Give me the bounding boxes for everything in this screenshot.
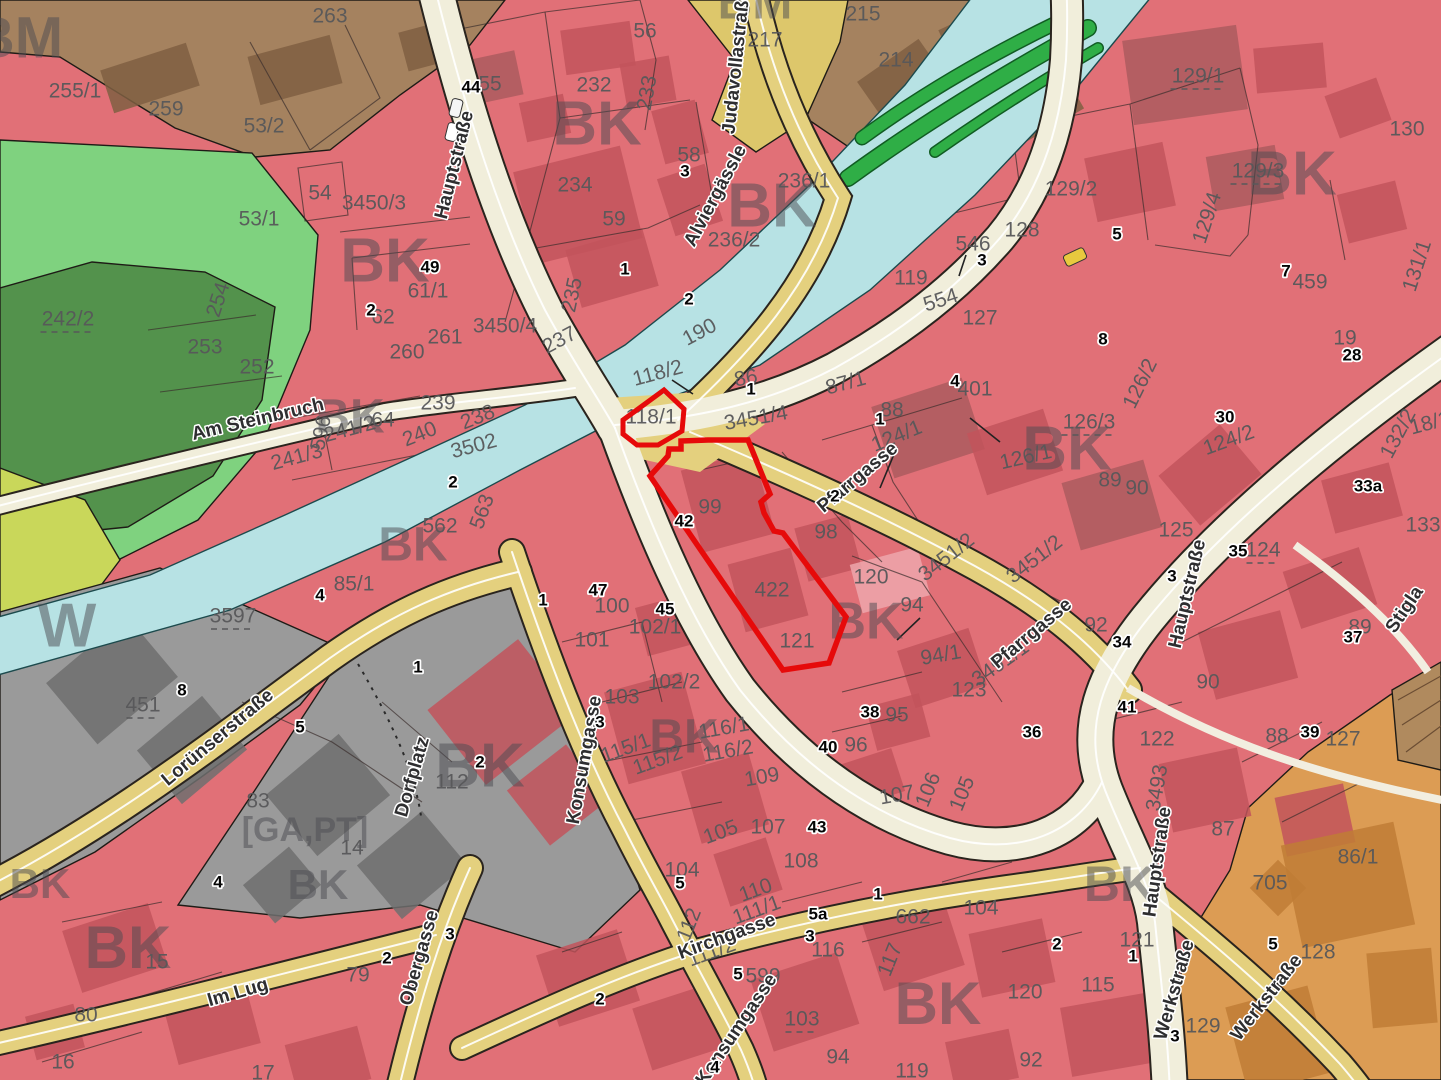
badge-label: 2 [382, 948, 391, 967]
badge-label: 5 [675, 873, 684, 892]
badge-label: 3 [977, 250, 986, 269]
badge-label: 40 [819, 737, 838, 756]
parcel-label: 123 [951, 679, 986, 702]
parcel-label: 85/1 [334, 573, 375, 596]
badge-label: 28 [1343, 345, 1362, 364]
badge-label: 42 [675, 511, 694, 530]
parcel-label: 16 [51, 1051, 74, 1074]
parcel-label: 253 [187, 336, 222, 359]
parcel-label: 236/1 [778, 170, 831, 193]
parcel-label: 80 [74, 1004, 97, 1027]
badge-label: 5 [295, 717, 304, 736]
map-image: BMBMBKBKBKBKBKBKBKBKBKBKBKBKBKBKBKW[GA,P… [0, 0, 1441, 1080]
badge-label: 45 [656, 599, 675, 618]
badge-label: 30 [1216, 407, 1235, 426]
parcel-label: 102/1 [629, 616, 682, 639]
parcel-label: 98 [814, 521, 837, 544]
badge-label: 2 [448, 472, 457, 491]
parcel-label: 15 [145, 951, 168, 974]
parcel-label: 236/2 [708, 229, 761, 252]
parcel-label: 562 [422, 515, 457, 538]
parcel-label: 130 [1389, 118, 1424, 141]
parcel-label: 115 [1081, 974, 1114, 997]
parcel-label: 239 [420, 392, 455, 415]
parcel-label: 112 [435, 771, 468, 794]
parcel-label: 92 [1084, 614, 1107, 637]
parcel-label: 129/2 [1045, 178, 1098, 201]
parcel-label: 120 [1007, 981, 1042, 1004]
badge-label: 2 [366, 300, 375, 319]
badge-label: 1 [746, 379, 755, 398]
building [1366, 948, 1437, 1028]
zone-label: BK [552, 89, 642, 158]
parcel-label: 451 [125, 694, 160, 717]
parcel-label: 101 [574, 629, 609, 652]
map-canvas[interactable]: BMBMBKBKBKBKBKBKBKBKBKBKBKBKBKBKBKW[GA,P… [0, 0, 1441, 1080]
badge-label: 3 [680, 161, 689, 180]
parcel-label: 17 [251, 1062, 274, 1080]
badge-label: 36 [1023, 722, 1042, 741]
badge-label: 44 [462, 77, 481, 96]
parcel-label: 252 [239, 356, 274, 379]
parcel-label: 116 [811, 939, 844, 962]
parcel-label: 108 [783, 850, 818, 873]
parcel-label: 260 [389, 341, 424, 364]
parcel-label: 53/2 [244, 115, 285, 138]
parcel-label: 3597 [210, 605, 257, 628]
badge-label: 49 [421, 257, 440, 276]
parcel-label: 83 [246, 790, 269, 813]
parcel-label: 126/3 [1063, 411, 1116, 434]
badge-label: 2 [684, 289, 693, 308]
badge-label: 3 [1170, 1026, 1179, 1045]
badge-label: 4 [315, 585, 325, 604]
parcel-label: 124 [1245, 539, 1280, 562]
parcel-label: 99 [698, 496, 721, 519]
parcel-label: 102/2 [648, 671, 701, 694]
parcel-label: 125 [1158, 519, 1193, 542]
badge-label: 1 [620, 259, 629, 278]
building [1060, 993, 1156, 1077]
parcel-label: 261 [427, 326, 462, 349]
parcel-label: 53/1 [239, 208, 280, 231]
parcel-label: 86/1 [1338, 846, 1379, 869]
parcel-label: 56 [633, 20, 656, 43]
building [1253, 43, 1327, 94]
parcel-label: 263 [312, 5, 347, 28]
parcel-label: 129 [1185, 1015, 1220, 1038]
badge-label: 37 [1344, 627, 1363, 646]
badge-label: 4 [710, 1057, 720, 1076]
parcel-label: 217 [747, 29, 782, 52]
parcel-label: 215 [845, 3, 880, 26]
parcel-label: 95 [885, 704, 908, 727]
badge-label: 2 [595, 989, 604, 1008]
badge-label: 2 [1052, 934, 1061, 953]
parcel-label: 422 [754, 579, 789, 602]
parcel-label: 119 [895, 1060, 928, 1080]
badge-label: 4 [950, 371, 960, 390]
parcel-label: 14 [340, 837, 364, 860]
parcel-label: 107 [750, 816, 785, 839]
zone-label: BK [10, 860, 71, 907]
parcel-label: 87 [1211, 818, 1234, 841]
parcel-label: 214 [878, 49, 913, 72]
parcel-label: 59 [602, 208, 625, 231]
parcel-label: 92 [1019, 1049, 1042, 1072]
badge-label: 2 [830, 486, 839, 505]
parcel-label: 55 [478, 73, 501, 96]
badge-label: 34 [1113, 632, 1132, 651]
parcel-label: 61/1 [408, 280, 449, 303]
badge-label: 3 [805, 926, 814, 945]
parcel-label: 118/1 [626, 406, 677, 429]
badge-label: 38 [861, 702, 880, 721]
badge-label: 5 [733, 964, 742, 983]
parcel-label: 133 [1405, 514, 1440, 537]
parcel-label: 3450/3 [342, 192, 406, 215]
parcel-label: 104 [963, 897, 998, 920]
parcel-label: 129/3 [1232, 160, 1285, 183]
parcel-label: 128 [1004, 219, 1039, 242]
badge-label: 1 [538, 590, 547, 609]
parcel-label: 90 [1196, 671, 1219, 694]
parcel-label: 662 [895, 906, 930, 929]
badge-label: 7 [1281, 261, 1290, 280]
badge-label: 41 [1118, 697, 1137, 716]
badge-label: 4 [213, 872, 223, 891]
parcel-label: 120 [853, 566, 888, 589]
badge-label: 35 [1229, 541, 1248, 560]
parcel-label: 232 [576, 74, 611, 97]
parcel-label: 88 [1265, 725, 1288, 748]
parcel-label: 129/1 [1172, 65, 1225, 88]
parcel-label: 119 [894, 267, 927, 290]
badge-label: 8 [1098, 329, 1107, 348]
parcel-label: 121 [779, 630, 814, 653]
badge-label: 47 [589, 580, 608, 599]
badge-label: 1 [413, 657, 422, 676]
parcel-label: 255/1 [49, 80, 102, 103]
parcel-label: 127 [962, 307, 997, 330]
badge-label: 39 [1301, 722, 1320, 741]
zone-label: W [38, 591, 97, 660]
parcel-label: 3450/4 [473, 315, 538, 338]
zone-label: BM [0, 5, 63, 70]
parcel-label: 103 [604, 686, 639, 709]
badge-label: 3 [1167, 566, 1176, 585]
badge-label: 5 [1112, 224, 1121, 243]
badge-label: 5a [809, 904, 828, 923]
badge-label: 2 [475, 752, 484, 771]
parcel-label: 242/2 [42, 308, 95, 331]
badge-label: 43 [808, 817, 827, 836]
parcel-label: 128 [1300, 941, 1335, 964]
parcel-label: 94 [900, 594, 924, 617]
parcel-label: 96 [844, 734, 867, 757]
parcel-label: 89 [1098, 469, 1121, 492]
parcel-label: 401 [957, 378, 992, 401]
badge-label: 1 [875, 409, 884, 428]
parcel-label: 459 [1292, 271, 1327, 294]
parcel-label: 90 [1125, 477, 1148, 500]
parcel-label: 122 [1139, 728, 1174, 751]
zone-label: BK [828, 593, 904, 651]
badge-label: 1 [1128, 946, 1137, 965]
badge-label: 1 [873, 884, 882, 903]
badge-label: 8 [177, 680, 186, 699]
parcel-label: 94 [826, 1046, 850, 1069]
zone-label: BK [895, 970, 982, 1037]
parcel-label: 705 [1252, 872, 1287, 895]
badge-label: 3 [595, 712, 604, 731]
parcel-label: 234 [557, 174, 592, 197]
badge-label: 3 [445, 924, 454, 943]
parcel-label: 127 [1325, 728, 1360, 751]
parcel-label: 79 [346, 964, 369, 987]
parcel-label: 103 [784, 1008, 819, 1031]
parcel-label: 54 [308, 182, 332, 205]
zone-label: BK [288, 861, 349, 908]
parcel-label: 259 [148, 98, 183, 121]
badge-label: 33a [1354, 476, 1383, 495]
badge-label: 5 [1268, 934, 1277, 953]
